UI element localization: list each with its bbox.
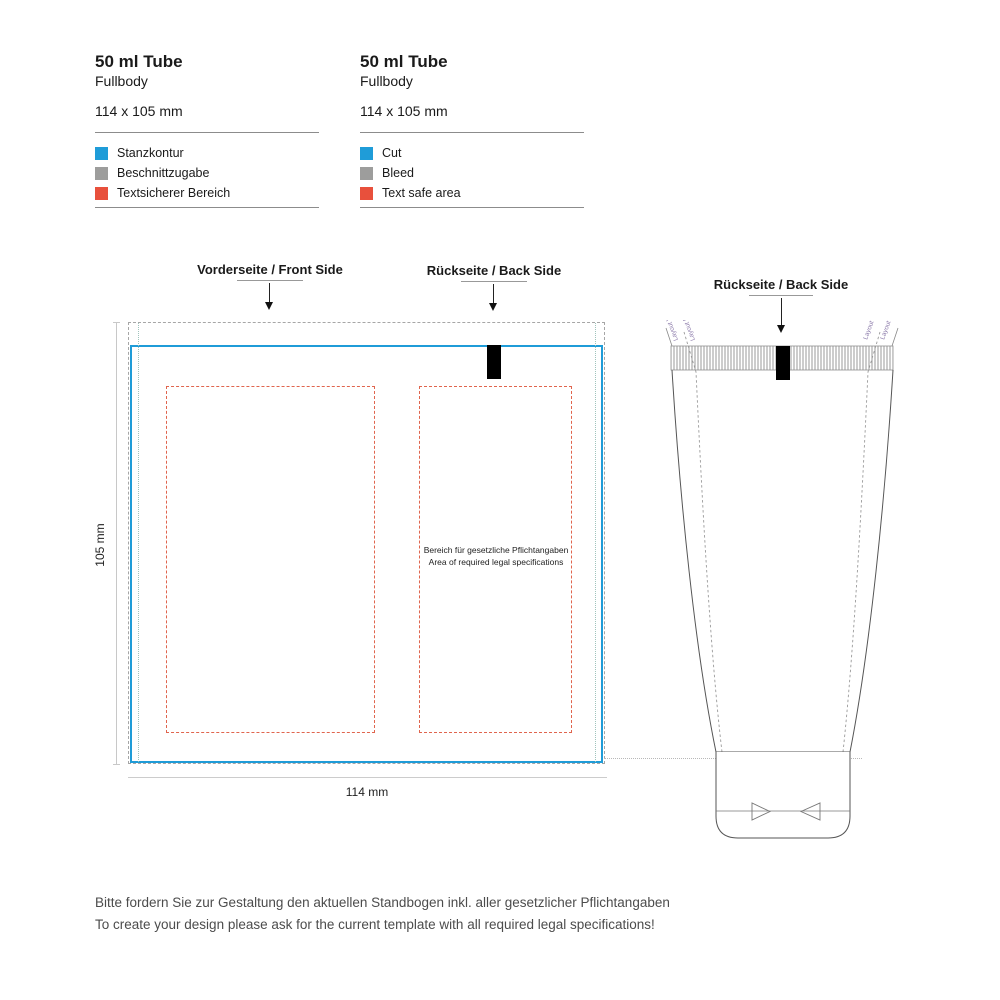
legend-de: Stanzkontur Beschnittzugabe Textsicherer… (95, 143, 319, 203)
front-side-underline (237, 280, 303, 281)
front-side-label: Vorderseite / Front Side (185, 262, 355, 277)
back-arrow-icon (489, 303, 497, 311)
legend-label: Beschnittzugabe (117, 166, 209, 180)
legal-note-de: Bereich für gesetzliche Pflichtangaben (420, 545, 572, 557)
legend-item-cut: Stanzkontur (95, 143, 319, 163)
bleed-color-swatch (95, 167, 108, 180)
legend-label: Cut (382, 146, 401, 160)
product-subtitle: Fullbody (95, 73, 319, 90)
template-sheet: 50 ml Tube Fullbody 114 x 105 mm Stanzko… (0, 0, 1000, 1000)
bleed-color-swatch (360, 167, 373, 180)
divider (360, 207, 584, 208)
cut-color-swatch (360, 147, 373, 160)
height-dimension-label: 105 mm (93, 515, 107, 575)
text-safe-area-front (166, 386, 375, 733)
legend-label: Text safe area (382, 186, 461, 200)
header-block-de: 50 ml Tube Fullbody 114 x 105 mm Stanzko… (95, 52, 319, 208)
back-side-underline (461, 281, 527, 282)
tube-right-edge (850, 370, 893, 752)
leader-right (892, 328, 898, 346)
tube-drawing: Layout Vorderseite Layout Front Layout F… (640, 320, 910, 850)
tube-back-underline (749, 295, 813, 296)
seam-line-left (138, 323, 139, 762)
layout-label-right-outer: Layout Vorderseite (879, 320, 904, 341)
back-side-label: Rückseite / Back Side (409, 263, 579, 278)
legend-label: Stanzkontur (117, 146, 184, 160)
legend-item-bleed: Bleed (360, 163, 584, 183)
width-dimension-label: 114 mm (317, 785, 417, 799)
legal-note-en: Area of required legal specifications (420, 557, 572, 569)
front-arrow-icon (265, 302, 273, 310)
product-subtitle: Fullbody (360, 73, 584, 90)
cut-color-swatch (95, 147, 108, 160)
legend-en: Cut Bleed Text safe area (360, 143, 584, 203)
legend-label: Textsicherer Bereich (117, 186, 230, 200)
divider (95, 207, 319, 208)
divider (360, 132, 584, 133)
dim-tick (113, 322, 120, 323)
layout-label-left-inner: Layout Front (678, 320, 697, 342)
legend-item-bleed: Beschnittzugabe (95, 163, 319, 183)
tube-left-edge (672, 370, 716, 752)
divider (95, 132, 319, 133)
wrap-line-left (684, 332, 722, 752)
product-title: 50 ml Tube (95, 52, 319, 72)
legend-item-safe: Textsicherer Bereich (95, 183, 319, 203)
legend-label: Bleed (382, 166, 414, 180)
safe-color-swatch (95, 187, 108, 200)
product-size: 114 x 105 mm (95, 103, 319, 119)
back-arrow-line (493, 284, 494, 304)
tube-registration-mark (776, 346, 790, 380)
safe-color-swatch (360, 187, 373, 200)
tube-cap (716, 752, 850, 838)
tube-back-side-label: Rückseite / Back Side (696, 277, 866, 292)
product-size: 114 x 105 mm (360, 103, 584, 119)
product-title: 50 ml Tube (360, 52, 584, 72)
width-dimension-line (128, 777, 607, 778)
header-block-en: 50 ml Tube Fullbody 114 x 105 mm Cut Ble… (360, 52, 584, 208)
dim-tick (113, 764, 120, 765)
registration-mark (487, 345, 501, 379)
footer-note: Bitte fordern Sie zur Gestaltung den akt… (95, 892, 670, 936)
wrap-line-right (843, 332, 880, 752)
seam-line-right (595, 323, 596, 762)
height-dimension-line (116, 322, 117, 764)
footer-line-en: To create your design please ask for the… (95, 914, 670, 936)
legend-item-safe: Text safe area (360, 183, 584, 203)
footer-line-de: Bitte fordern Sie zur Gestaltung den akt… (95, 892, 670, 914)
legal-area-note: Bereich für gesetzliche Pflichtangaben A… (420, 545, 572, 569)
front-arrow-line (269, 283, 270, 303)
legend-item-cut: Cut (360, 143, 584, 163)
